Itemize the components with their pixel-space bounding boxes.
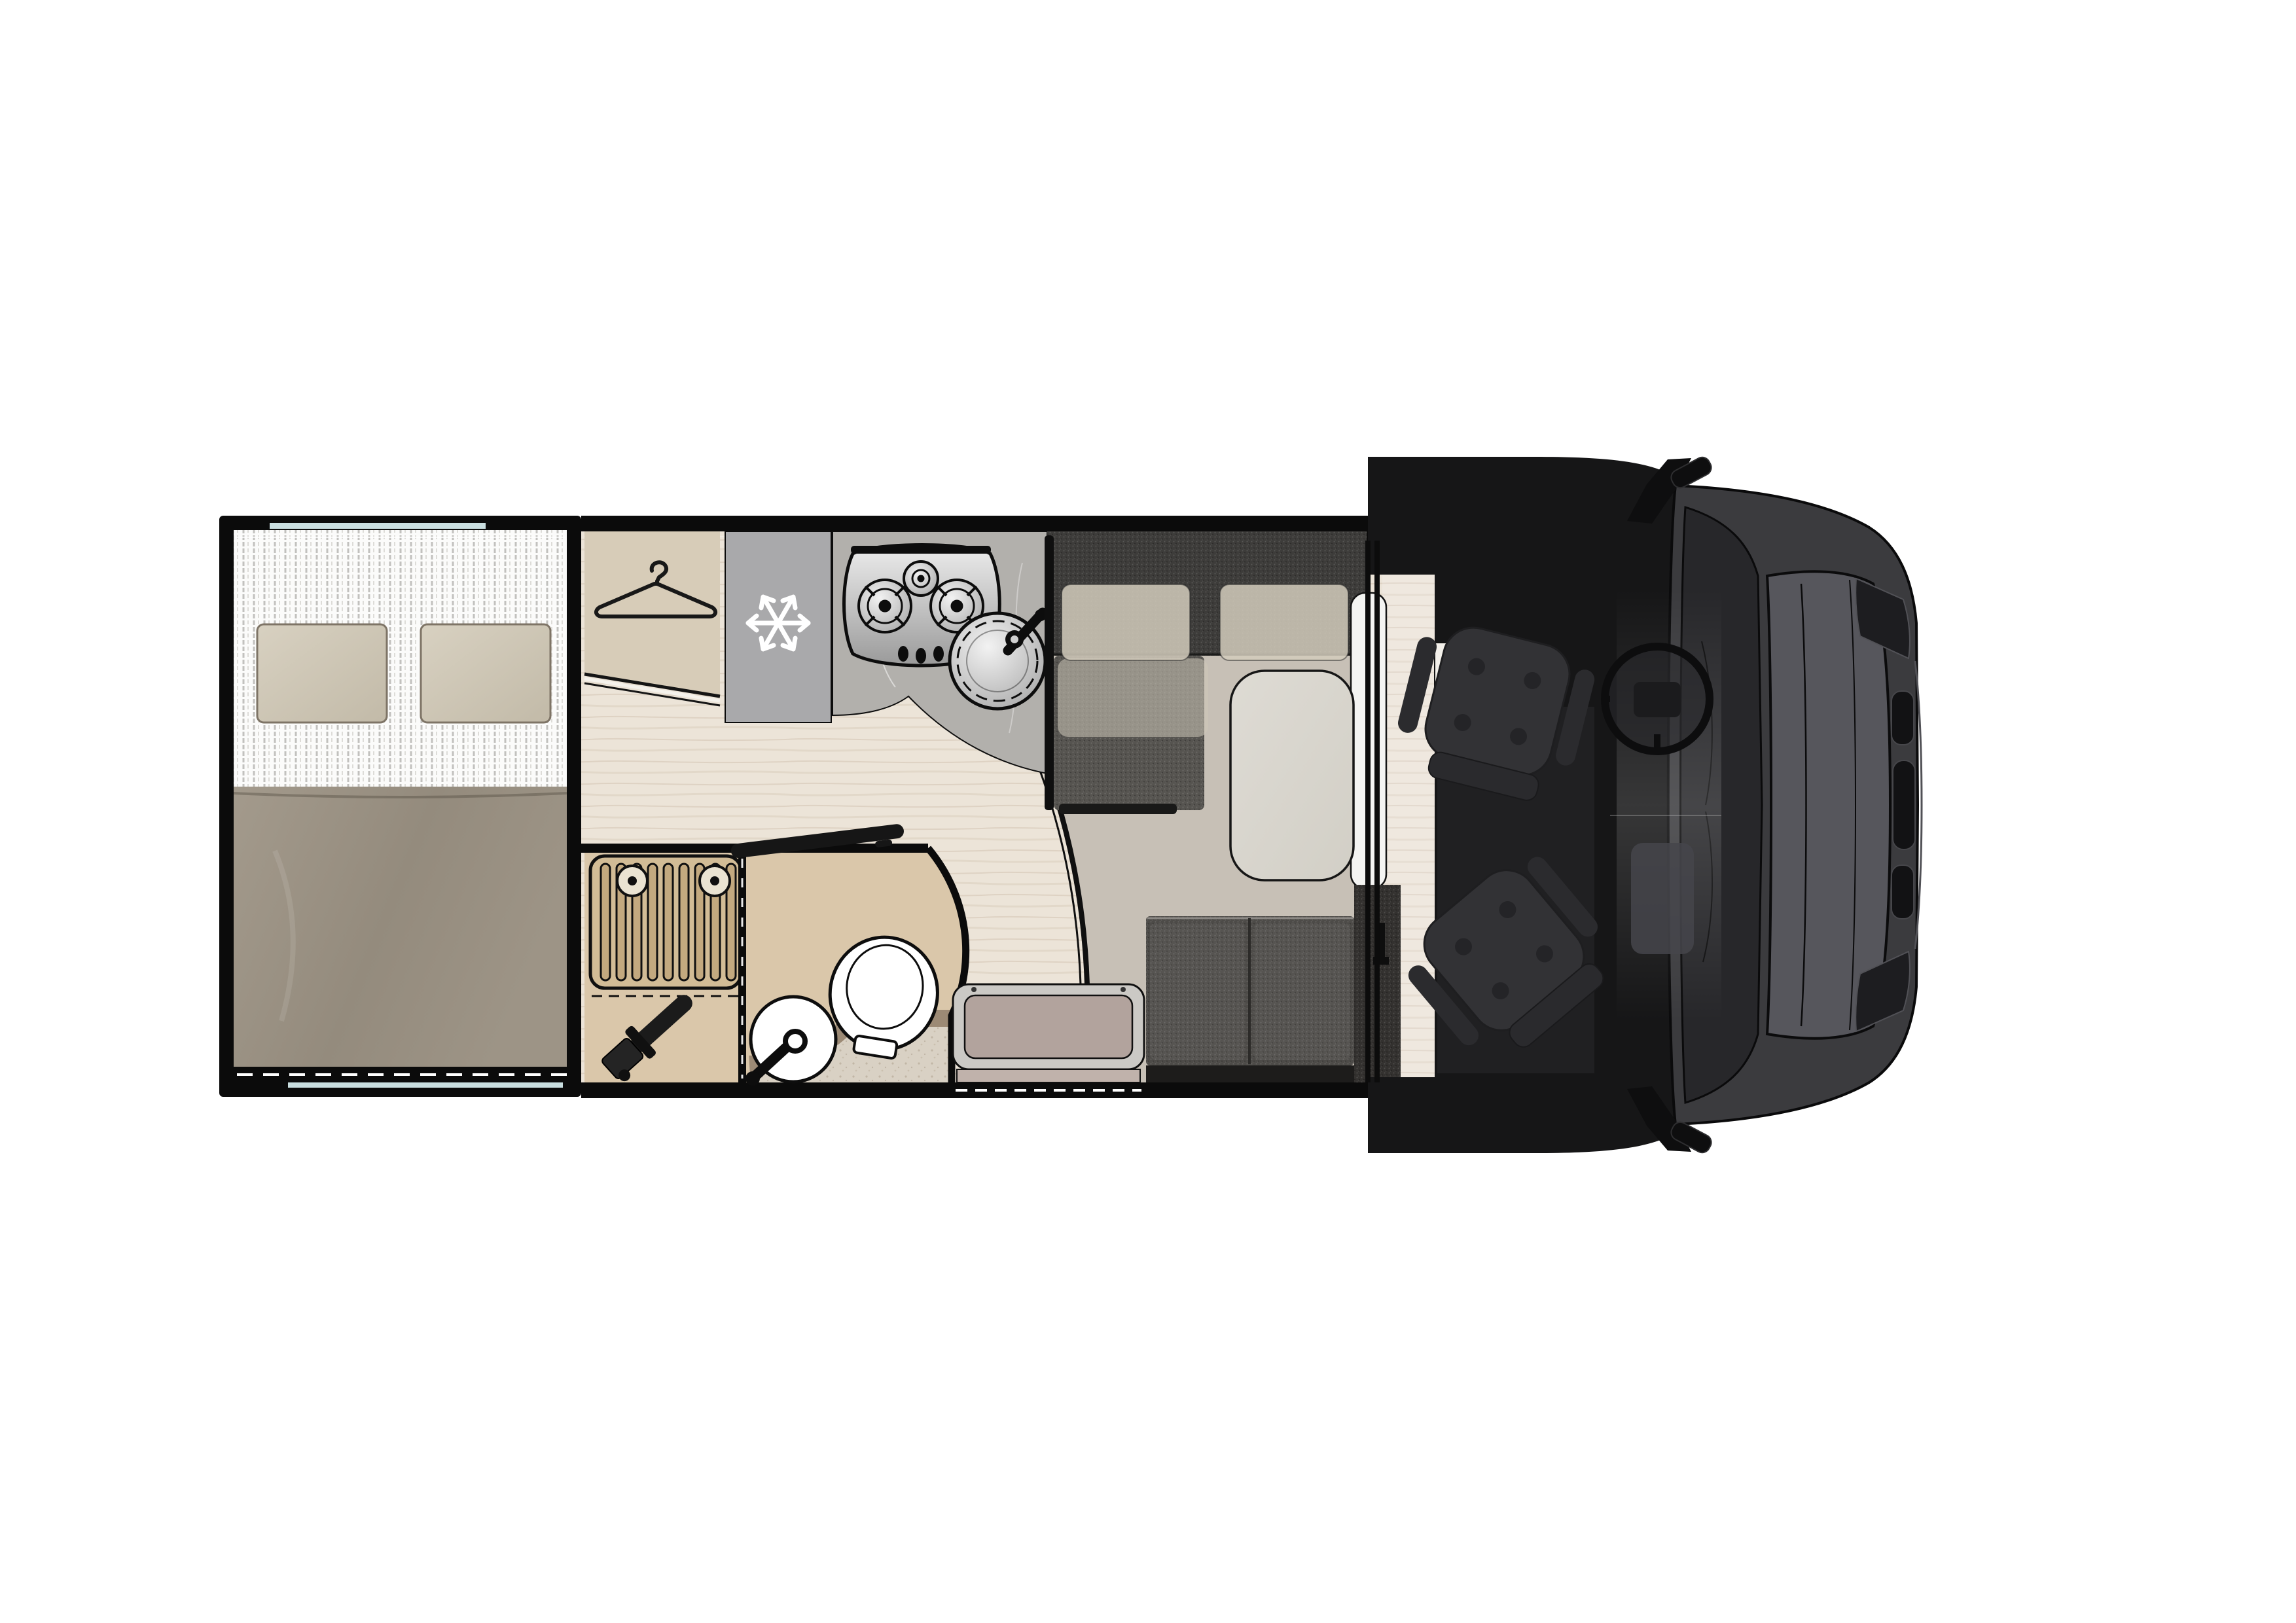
entry-step (965, 995, 1132, 1058)
grille-bar (1893, 760, 1915, 849)
wall-top (581, 516, 1368, 531)
grille-bar (1892, 865, 1914, 919)
hob-knob (916, 648, 926, 664)
bathroom-zone (581, 823, 966, 1086)
grille-bar (1892, 691, 1914, 745)
bed-window-bottom (288, 1082, 563, 1088)
pillow-left (257, 624, 387, 722)
cab-zone (1368, 455, 1922, 1156)
wardrobe-cabinet (584, 531, 720, 695)
entry-zone (953, 984, 1144, 1090)
bulkhead-rail (1365, 541, 1371, 1082)
hob-knob (933, 646, 944, 662)
fridge-zone (725, 531, 831, 722)
entry-lower-step (957, 1069, 1140, 1082)
steering-wheel (1605, 647, 1710, 751)
bed-duvet (234, 787, 567, 1067)
headrest-cushion-left (1062, 584, 1190, 660)
bulkhead-rail (1374, 541, 1380, 1082)
dinette-side-rail (1045, 535, 1054, 810)
side-seat-cushion (1058, 658, 1208, 737)
floorplan-drawing (0, 0, 2296, 1623)
travel-bench (1146, 916, 1354, 1065)
wall-bottom (581, 1082, 1401, 1098)
headrest-cushion-right (1220, 584, 1348, 660)
shower-grate (590, 856, 741, 996)
hob-knob (898, 646, 908, 662)
center-console (1631, 843, 1694, 954)
pillow-right (421, 624, 550, 722)
bed-window-top (270, 523, 486, 529)
floorplan-canvas (0, 0, 2296, 1623)
dinette-table (1230, 671, 1354, 880)
bedroom-zone (219, 516, 581, 1097)
